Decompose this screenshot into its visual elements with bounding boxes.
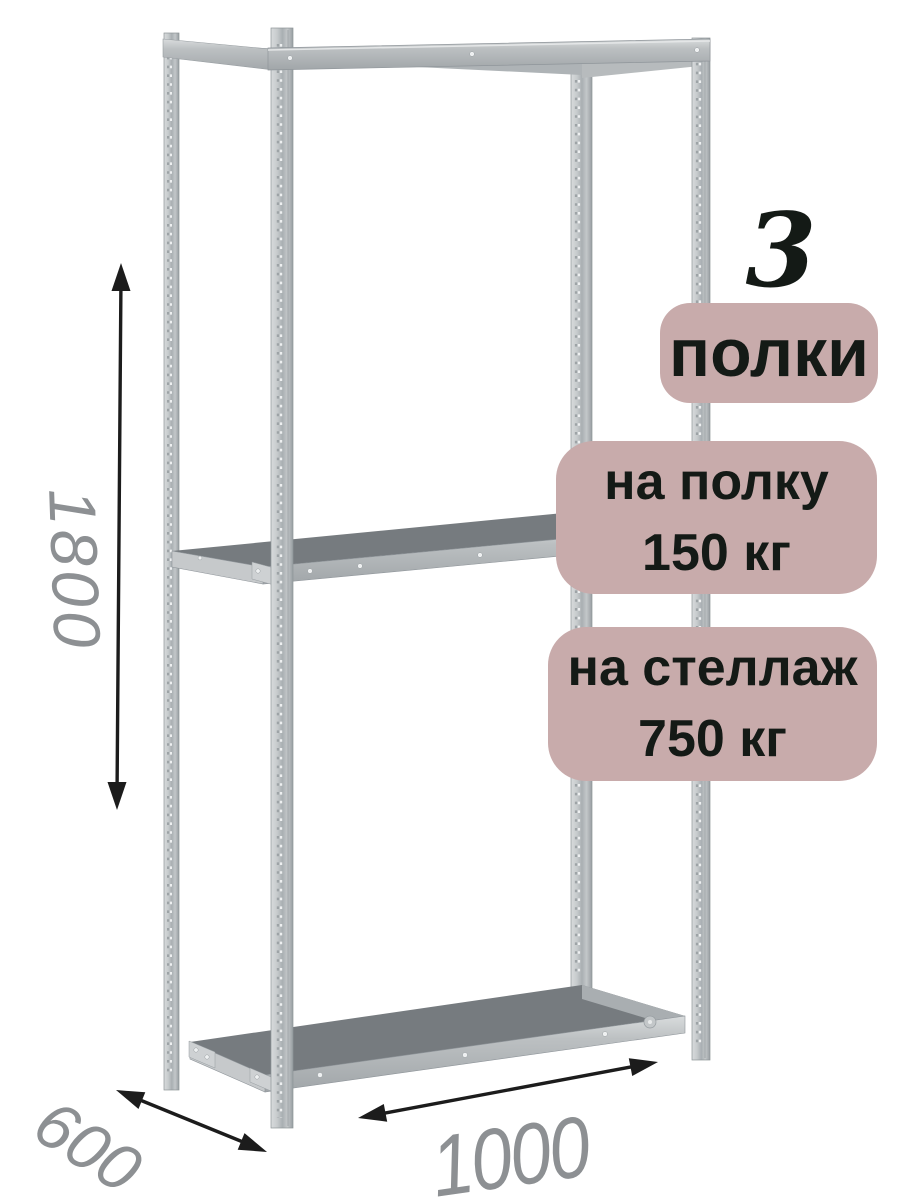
rack-load-line2: 750 кг xyxy=(638,704,787,775)
shelf-count-value: 3 xyxy=(726,200,836,302)
bottom-shelf xyxy=(189,985,685,1094)
shelf-load-line1: на полку xyxy=(604,447,829,518)
shelf-count-badge: полки xyxy=(660,303,878,403)
rack-load-line1: на стеллаж xyxy=(568,633,858,704)
post-front-left xyxy=(271,28,293,1128)
shelf-load-badge: на полку 150 кг xyxy=(556,441,877,594)
rack-load-badge: на стеллаж 750 кг xyxy=(548,627,877,781)
product-image: 1800 600 1000 3 полки на полку 150 кг на… xyxy=(0,0,900,1200)
shelving-rack-illustration xyxy=(0,0,900,1200)
height-dimension-label: 1800 xyxy=(32,419,118,721)
shelf-load-line2: 150 кг xyxy=(642,518,791,589)
shelf-count-badge-label: полки xyxy=(669,319,869,387)
